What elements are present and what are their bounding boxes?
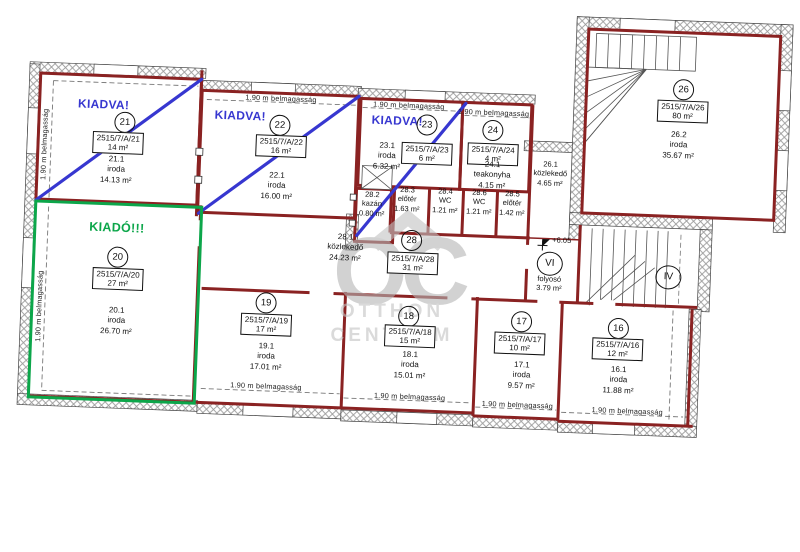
room-26-unit-label: 26.2 iroda 35.67 m² — [662, 129, 695, 161]
room-20-lot-box: 2515/7/A/20 27 m² — [92, 267, 144, 291]
corridor-261-label: 26.1 közlekedő 4.65 m² — [533, 159, 568, 188]
room-26-lot-box: 2515/7/A/26 80 m² — [657, 100, 709, 124]
room-20-number-circle: 20 — [107, 246, 129, 268]
ceiling-height-label: 1.90 m belmagasság — [482, 400, 554, 411]
room-23-status: KIADVA! — [371, 113, 423, 129]
room-19-unit-label: 19.1 iroda 17.01 m² — [250, 341, 283, 373]
room-19-number-circle: 19 — [255, 292, 277, 314]
ceiling-height-label: 1.90 m belmagasság — [230, 381, 302, 392]
room-17-number-circle: 17 — [511, 311, 533, 333]
room-21-unit-label: 21.1 iroda 14.13 m² — [100, 154, 133, 186]
ceiling-height-label: 1.90 m belmagasság — [591, 406, 663, 417]
room-286-label: 28.6 WC 1.21 m² — [466, 187, 492, 216]
room-18-unit-label: 18.1 iroda 15.01 m² — [393, 349, 426, 381]
room-21-number-circle: 21 — [114, 111, 136, 133]
room-19-lot-box: 2515/7/A/19 17 m² — [240, 313, 292, 337]
room-22-unit-label: 22.1 iroda 16.00 m² — [260, 170, 293, 202]
room-21-lot-box: 2515/7/A/21 14 m² — [92, 131, 144, 155]
room-282-label: 28.2 kazán 0.80 m² — [359, 189, 385, 218]
stair-vi-label: folyosó 3.79 m² — [536, 274, 562, 294]
room-284-label: 28.4 WC 1.21 m² — [432, 186, 458, 215]
room-16-unit-label: 16.1 iroda 11.88 m² — [602, 364, 634, 396]
ceiling-height-label: 1.90 m belmagasság — [373, 101, 445, 112]
corridor-281-label: 28.1 közlekedő 24.23 m² — [327, 232, 364, 265]
room-20-unit-label: 20.1 iroda 26.70 m² — [100, 305, 133, 337]
ceiling-height-label: 1.90 m belmagasság — [34, 270, 45, 342]
room-22-status: KIADVA! — [214, 108, 266, 124]
room-16-number-circle: 16 — [607, 318, 629, 340]
ceiling-height-label: 1.90 m belmagasság — [39, 108, 50, 180]
stair-iv-circle: IV — [655, 265, 682, 290]
room-23-number-circle: 23 — [416, 114, 438, 136]
room-20-status: KIADÓ!!! — [89, 220, 145, 237]
room-21-status: KIADVA! — [78, 96, 130, 112]
room-17-unit-label: 17.1 iroda 9.57 m² — [507, 360, 535, 392]
room-23-unit-label: 23.1 iroda 6.32 m² — [373, 140, 401, 172]
room-23-lot-box: 2515/7/A/23 6 m² — [401, 142, 453, 166]
room-28-lot-box: 2515/7/A/28 31 m² — [387, 251, 439, 275]
ceiling-height-label: 1.90 m belmagasság — [245, 94, 317, 105]
room-17-lot-box: 2515/7/A/17 10 m² — [494, 332, 546, 356]
ceiling-height-label: 1.90 m belmagasság — [374, 392, 446, 403]
level-mark-label: +6.05 — [552, 235, 571, 245]
room-22-number-circle: 22 — [269, 114, 291, 136]
stair-vi-circle: VI — [536, 251, 563, 276]
room-283-label: 28.3 előtér 1.63 m² — [394, 185, 420, 214]
room-26-number-circle: 26 — [673, 79, 695, 101]
labels-layer: KIADVA! 21 2515/7/A/21 14 m² 21.1 iroda … — [0, 0, 800, 552]
room-28-number-circle: 28 — [401, 230, 423, 252]
ceiling-height-label: 1.90 m belmagasság — [458, 108, 530, 119]
room-24-unit-label: 24.1 teakonyha 4.15 m² — [473, 159, 511, 192]
room-16-lot-box: 2515/7/A/16 12 m² — [592, 337, 644, 361]
floor-plan-canvas: OC OTTHON CENTRUM KIADVA! 21 2515/7/A/21… — [0, 0, 800, 552]
room-285-label: 28.5 előtér 1.42 m² — [499, 189, 525, 218]
room-24-number-circle: 24 — [482, 120, 504, 142]
room-22-lot-box: 2515/7/A/22 16 m² — [255, 134, 307, 158]
room-18-lot-box: 2515/7/A/18 15 m² — [384, 324, 436, 348]
